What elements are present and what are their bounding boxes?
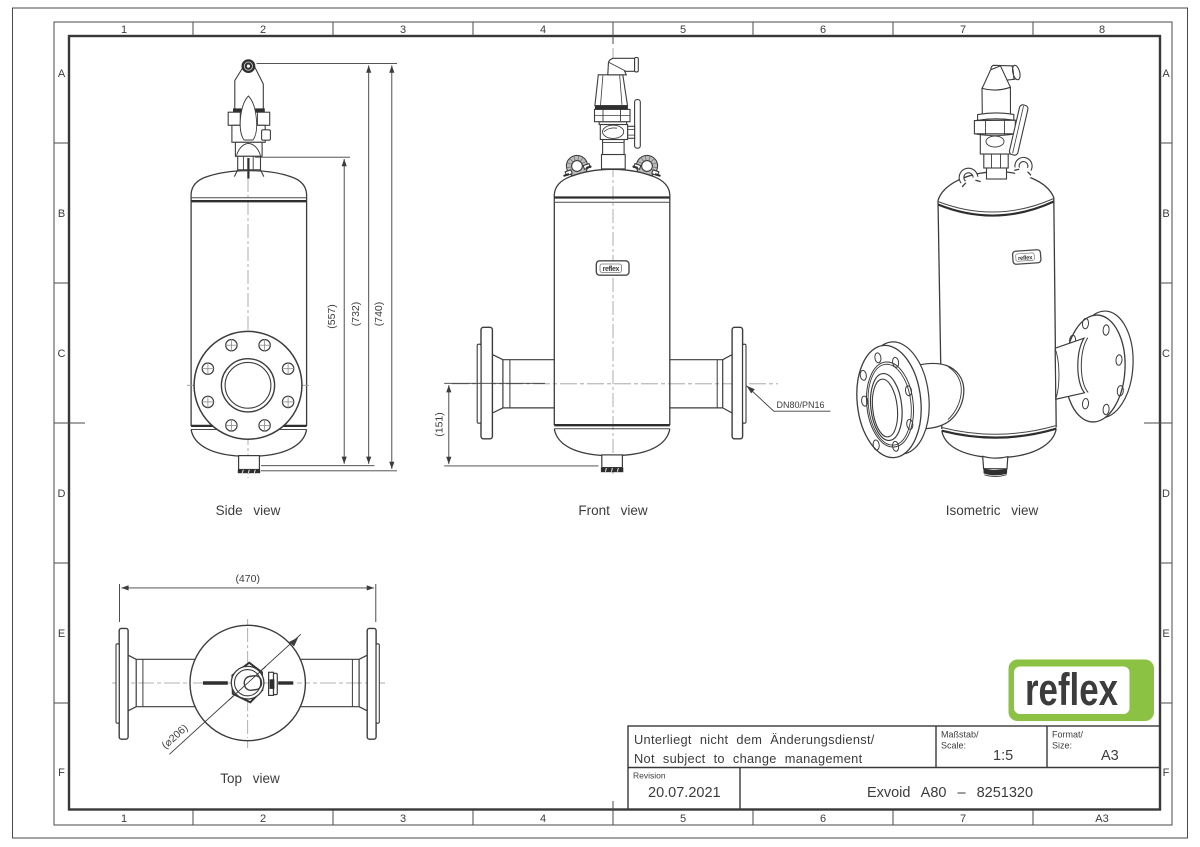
svg-text:B: B — [1162, 208, 1169, 220]
svg-text:1: 1 — [121, 813, 127, 825]
svg-text:Side view: Side view — [216, 503, 281, 518]
svg-text:A3: A3 — [1095, 813, 1108, 825]
svg-text:5: 5 — [680, 24, 686, 36]
svg-text:20.07.2021: 20.07.2021 — [648, 785, 721, 801]
svg-text:Top view: Top view — [220, 771, 280, 786]
svg-text:A: A — [58, 68, 66, 80]
svg-text:Revision: Revision — [633, 771, 666, 781]
svg-text:Exvoid A80 – 8251320: Exvoid A80 – 8251320 — [867, 785, 1033, 801]
svg-text:C: C — [1162, 348, 1170, 360]
svg-text:1: 1 — [121, 24, 127, 36]
svg-text:D: D — [1162, 488, 1170, 500]
svg-text:Isometric view: Isometric view — [946, 503, 1039, 518]
svg-text:A3: A3 — [1101, 748, 1119, 764]
svg-text:7: 7 — [960, 24, 966, 36]
svg-text:6: 6 — [820, 24, 826, 36]
svg-text:reflex: reflex — [1018, 255, 1034, 262]
svg-text:3: 3 — [400, 813, 406, 825]
svg-text:Scale:: Scale: — [941, 741, 966, 751]
svg-text:(732): (732) — [350, 302, 362, 327]
svg-text:E: E — [58, 628, 65, 640]
svg-text:7: 7 — [960, 813, 966, 825]
svg-text:4: 4 — [540, 24, 546, 36]
svg-text:(151): (151) — [434, 412, 446, 437]
svg-text:Not subject to change manageme: Not subject to change management — [634, 751, 863, 766]
svg-text:5: 5 — [680, 813, 686, 825]
svg-text:E: E — [1162, 628, 1169, 640]
svg-text:Size:: Size: — [1052, 741, 1072, 751]
svg-text:B: B — [58, 208, 65, 220]
svg-text:A: A — [1162, 68, 1170, 80]
svg-text:6: 6 — [820, 813, 826, 825]
svg-text:(740): (740) — [373, 302, 385, 327]
svg-text:3: 3 — [400, 24, 406, 36]
svg-text:Format/: Format/ — [1052, 730, 1084, 740]
svg-text:Unterliegt nicht dem Änderungs: Unterliegt nicht dem Änderungsdienst/ — [634, 732, 875, 747]
svg-text:C: C — [58, 348, 66, 360]
svg-text:F: F — [1163, 767, 1170, 779]
svg-text:D: D — [58, 488, 66, 500]
svg-text:2: 2 — [260, 813, 266, 825]
svg-text:(470): (470) — [235, 573, 260, 585]
svg-text:4: 4 — [540, 813, 546, 825]
svg-text:DN80/PN16: DN80/PN16 — [777, 400, 825, 410]
svg-text:F: F — [58, 767, 65, 779]
svg-text:reflex: reflex — [1025, 664, 1118, 715]
svg-text:Front view: Front view — [578, 503, 648, 518]
svg-text:(557): (557) — [326, 304, 338, 329]
svg-text:Maßstab/: Maßstab/ — [941, 730, 979, 740]
svg-text:8: 8 — [1099, 24, 1105, 36]
svg-text:1:5: 1:5 — [993, 748, 1013, 764]
svg-text:reflex: reflex — [603, 266, 620, 273]
svg-text:2: 2 — [260, 24, 266, 36]
